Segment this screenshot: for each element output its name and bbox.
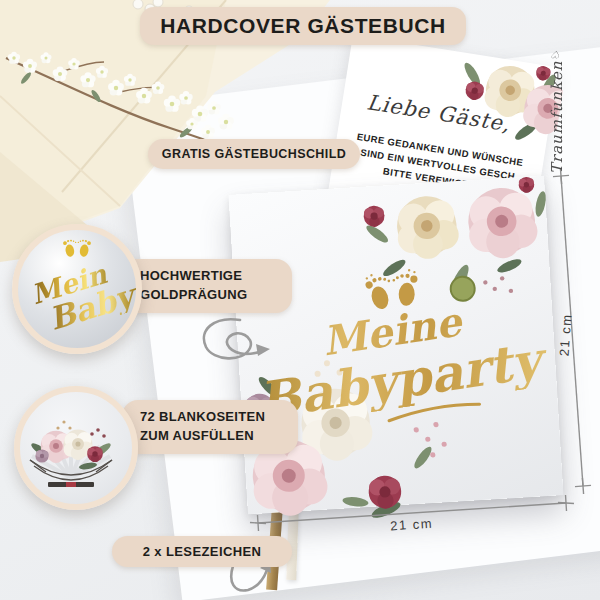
callout-bookmarks: 2 x LESEZEICHEN (112, 536, 292, 567)
product-showcase: Liebe Gäste, EURE GEDANKEN UND WÜNSCHE S… (0, 0, 600, 600)
open-book-illustration (18, 398, 124, 498)
brand-signature: Traumfunken♡ (548, 42, 566, 174)
detail-inset-open-book (14, 386, 138, 510)
callout-free-sign: GRATIS GÄSTEBUCHSCHILD (148, 139, 360, 169)
heart-icon: ♡ (551, 48, 562, 60)
guestbook-cover: Meine Babyparty (229, 176, 564, 515)
callout-blank-pages: 72 BLANKOSEITEN ZUM AUSFÜLLEN (122, 400, 298, 454)
foil-baby-feet-icon (60, 236, 94, 260)
foil-embossed-text: Mein Babyp (28, 248, 142, 338)
detail-inset-gold-foil: Mein Babyp (12, 224, 142, 354)
callout-gold-foil: HOCHWERTIGE GOLDPRÄGUNG (122, 259, 292, 313)
page-title: HARDCOVER GÄSTEBUCH (140, 7, 466, 45)
